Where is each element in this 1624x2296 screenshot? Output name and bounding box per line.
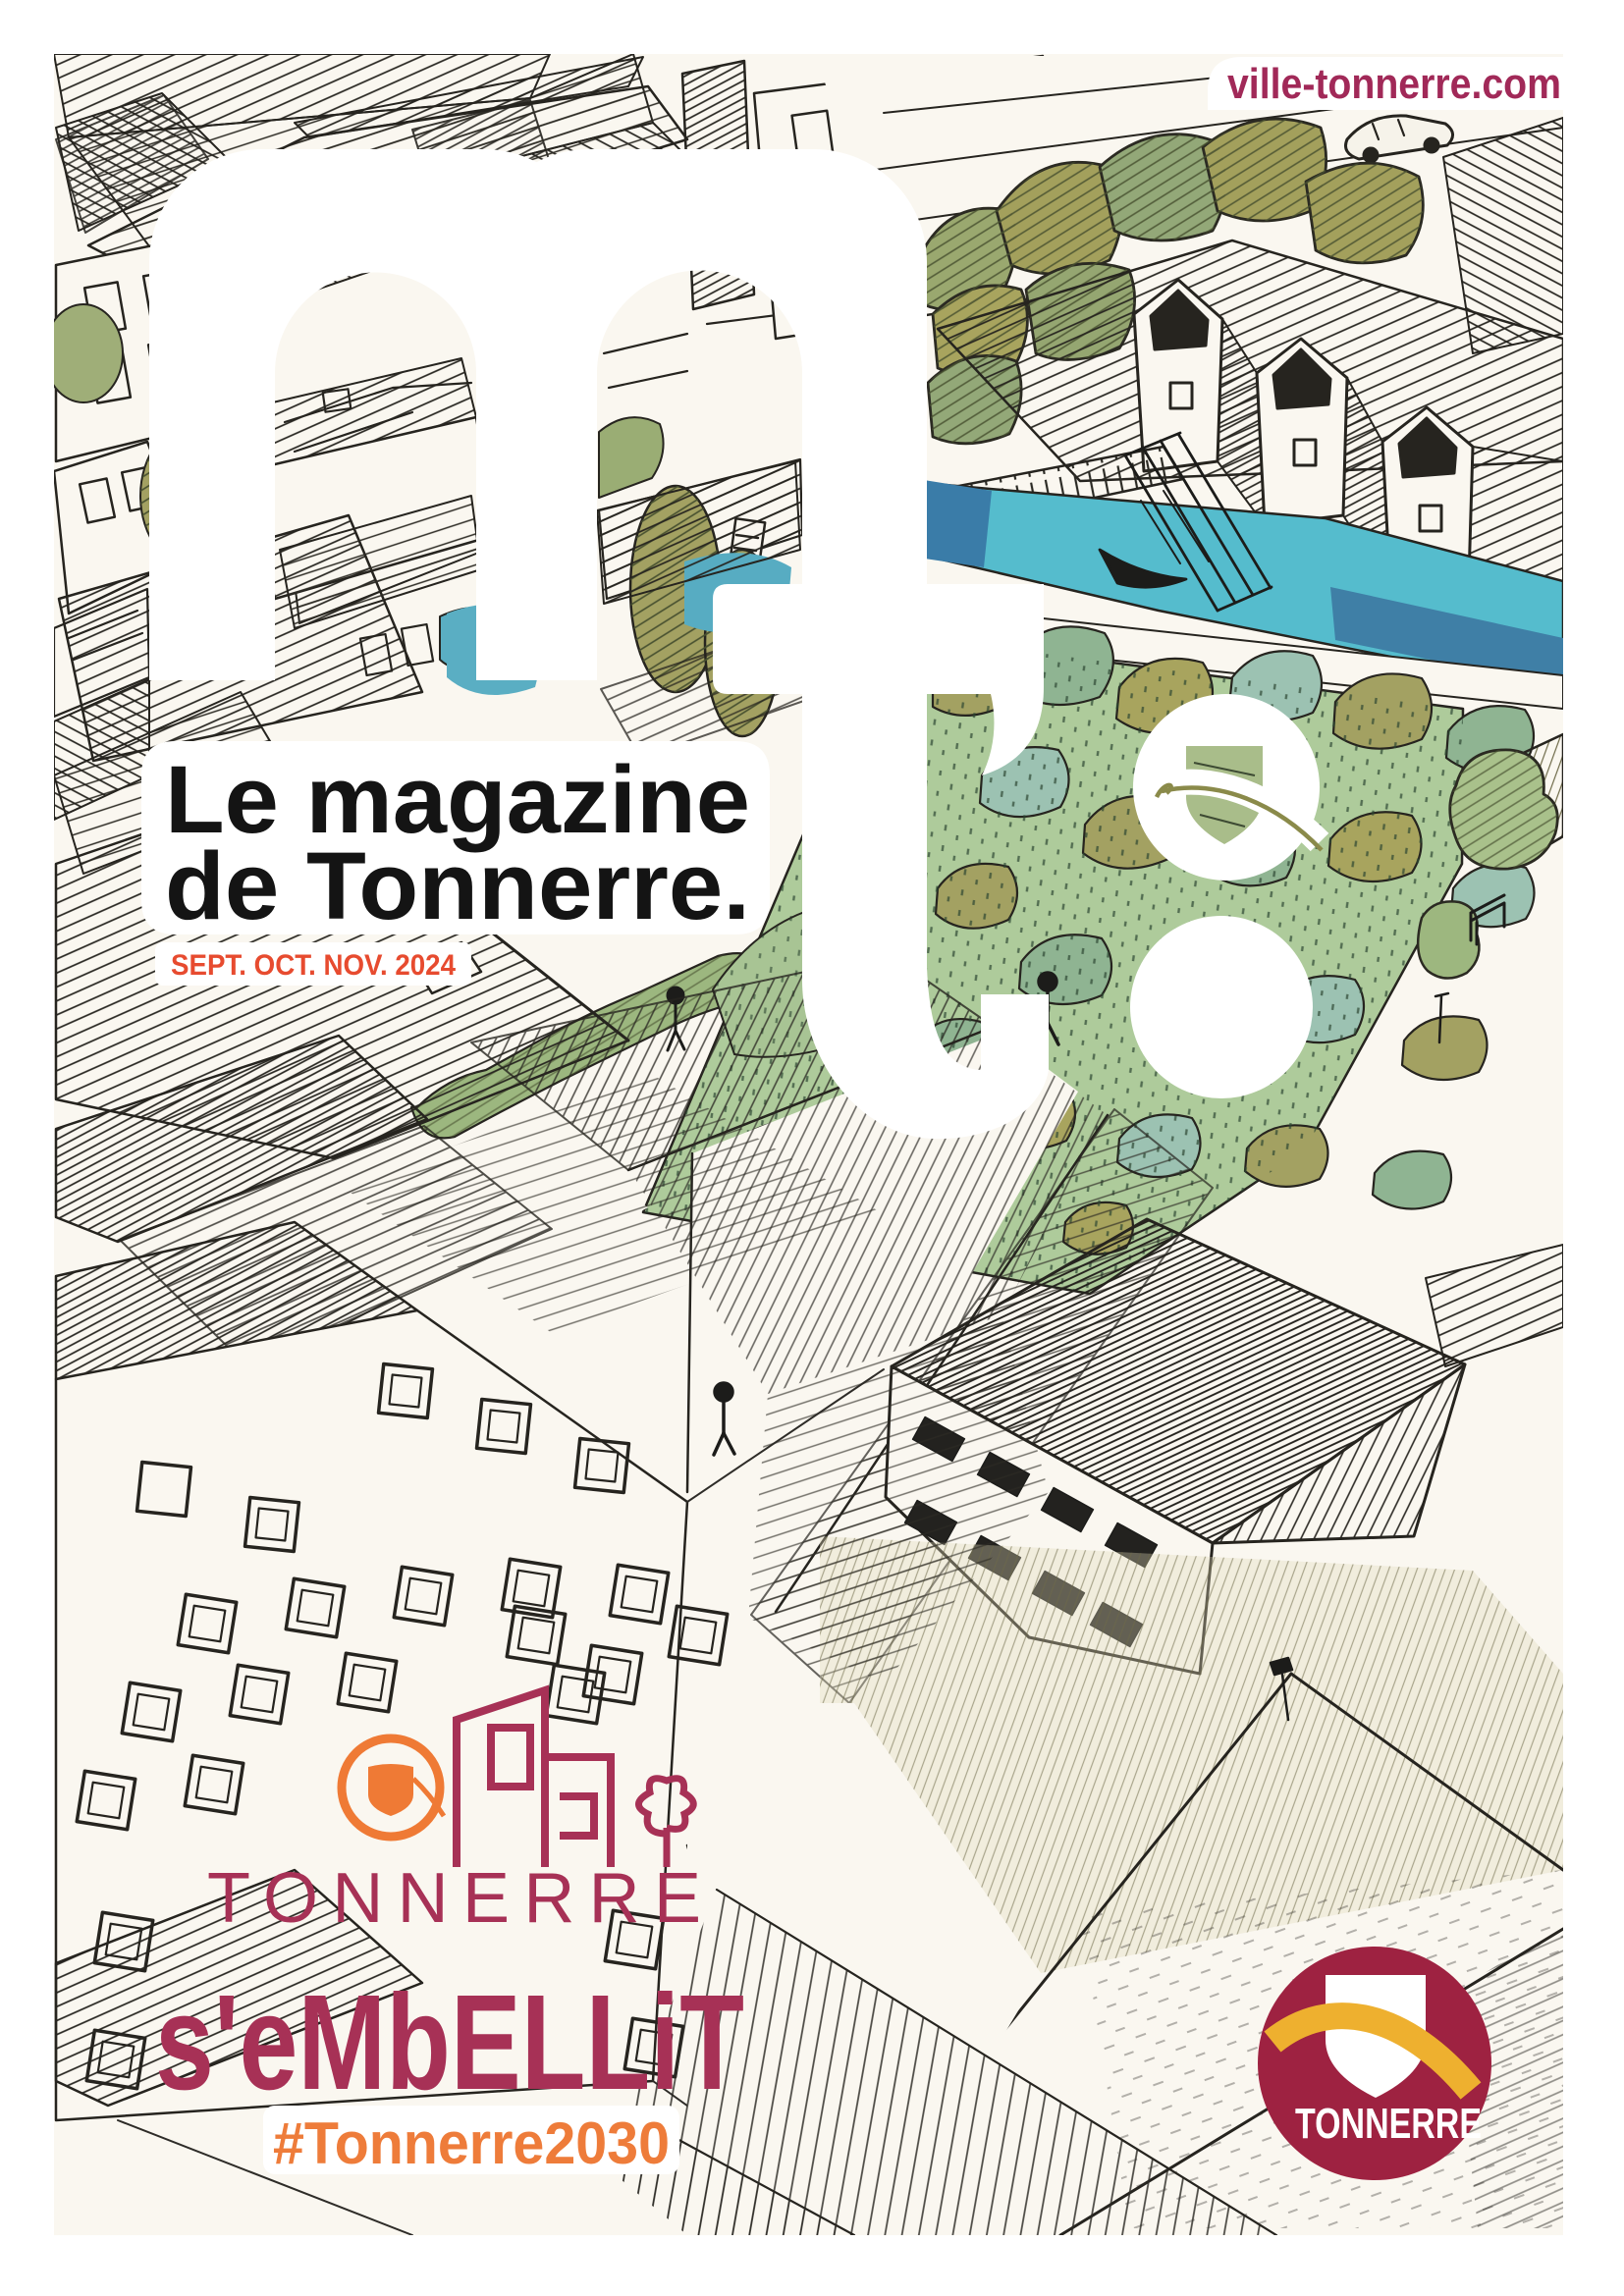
svg-text:s'eMbELLiT: s'eMbELLiT	[155, 1967, 744, 2118]
svg-text:TONNERRE: TONNERRE	[1295, 2100, 1482, 2148]
svg-text:de Tonnerre.: de Tonnerre.	[165, 832, 750, 939]
svg-text:ville-tonnerre.com: ville-tonnerre.com	[1227, 60, 1561, 108]
svg-text:#Tonnerre2030: #Tonnerre2030	[273, 2110, 670, 2176]
svg-text:SEPT. OCT. NOV. 2024: SEPT. OCT. NOV. 2024	[171, 949, 456, 982]
